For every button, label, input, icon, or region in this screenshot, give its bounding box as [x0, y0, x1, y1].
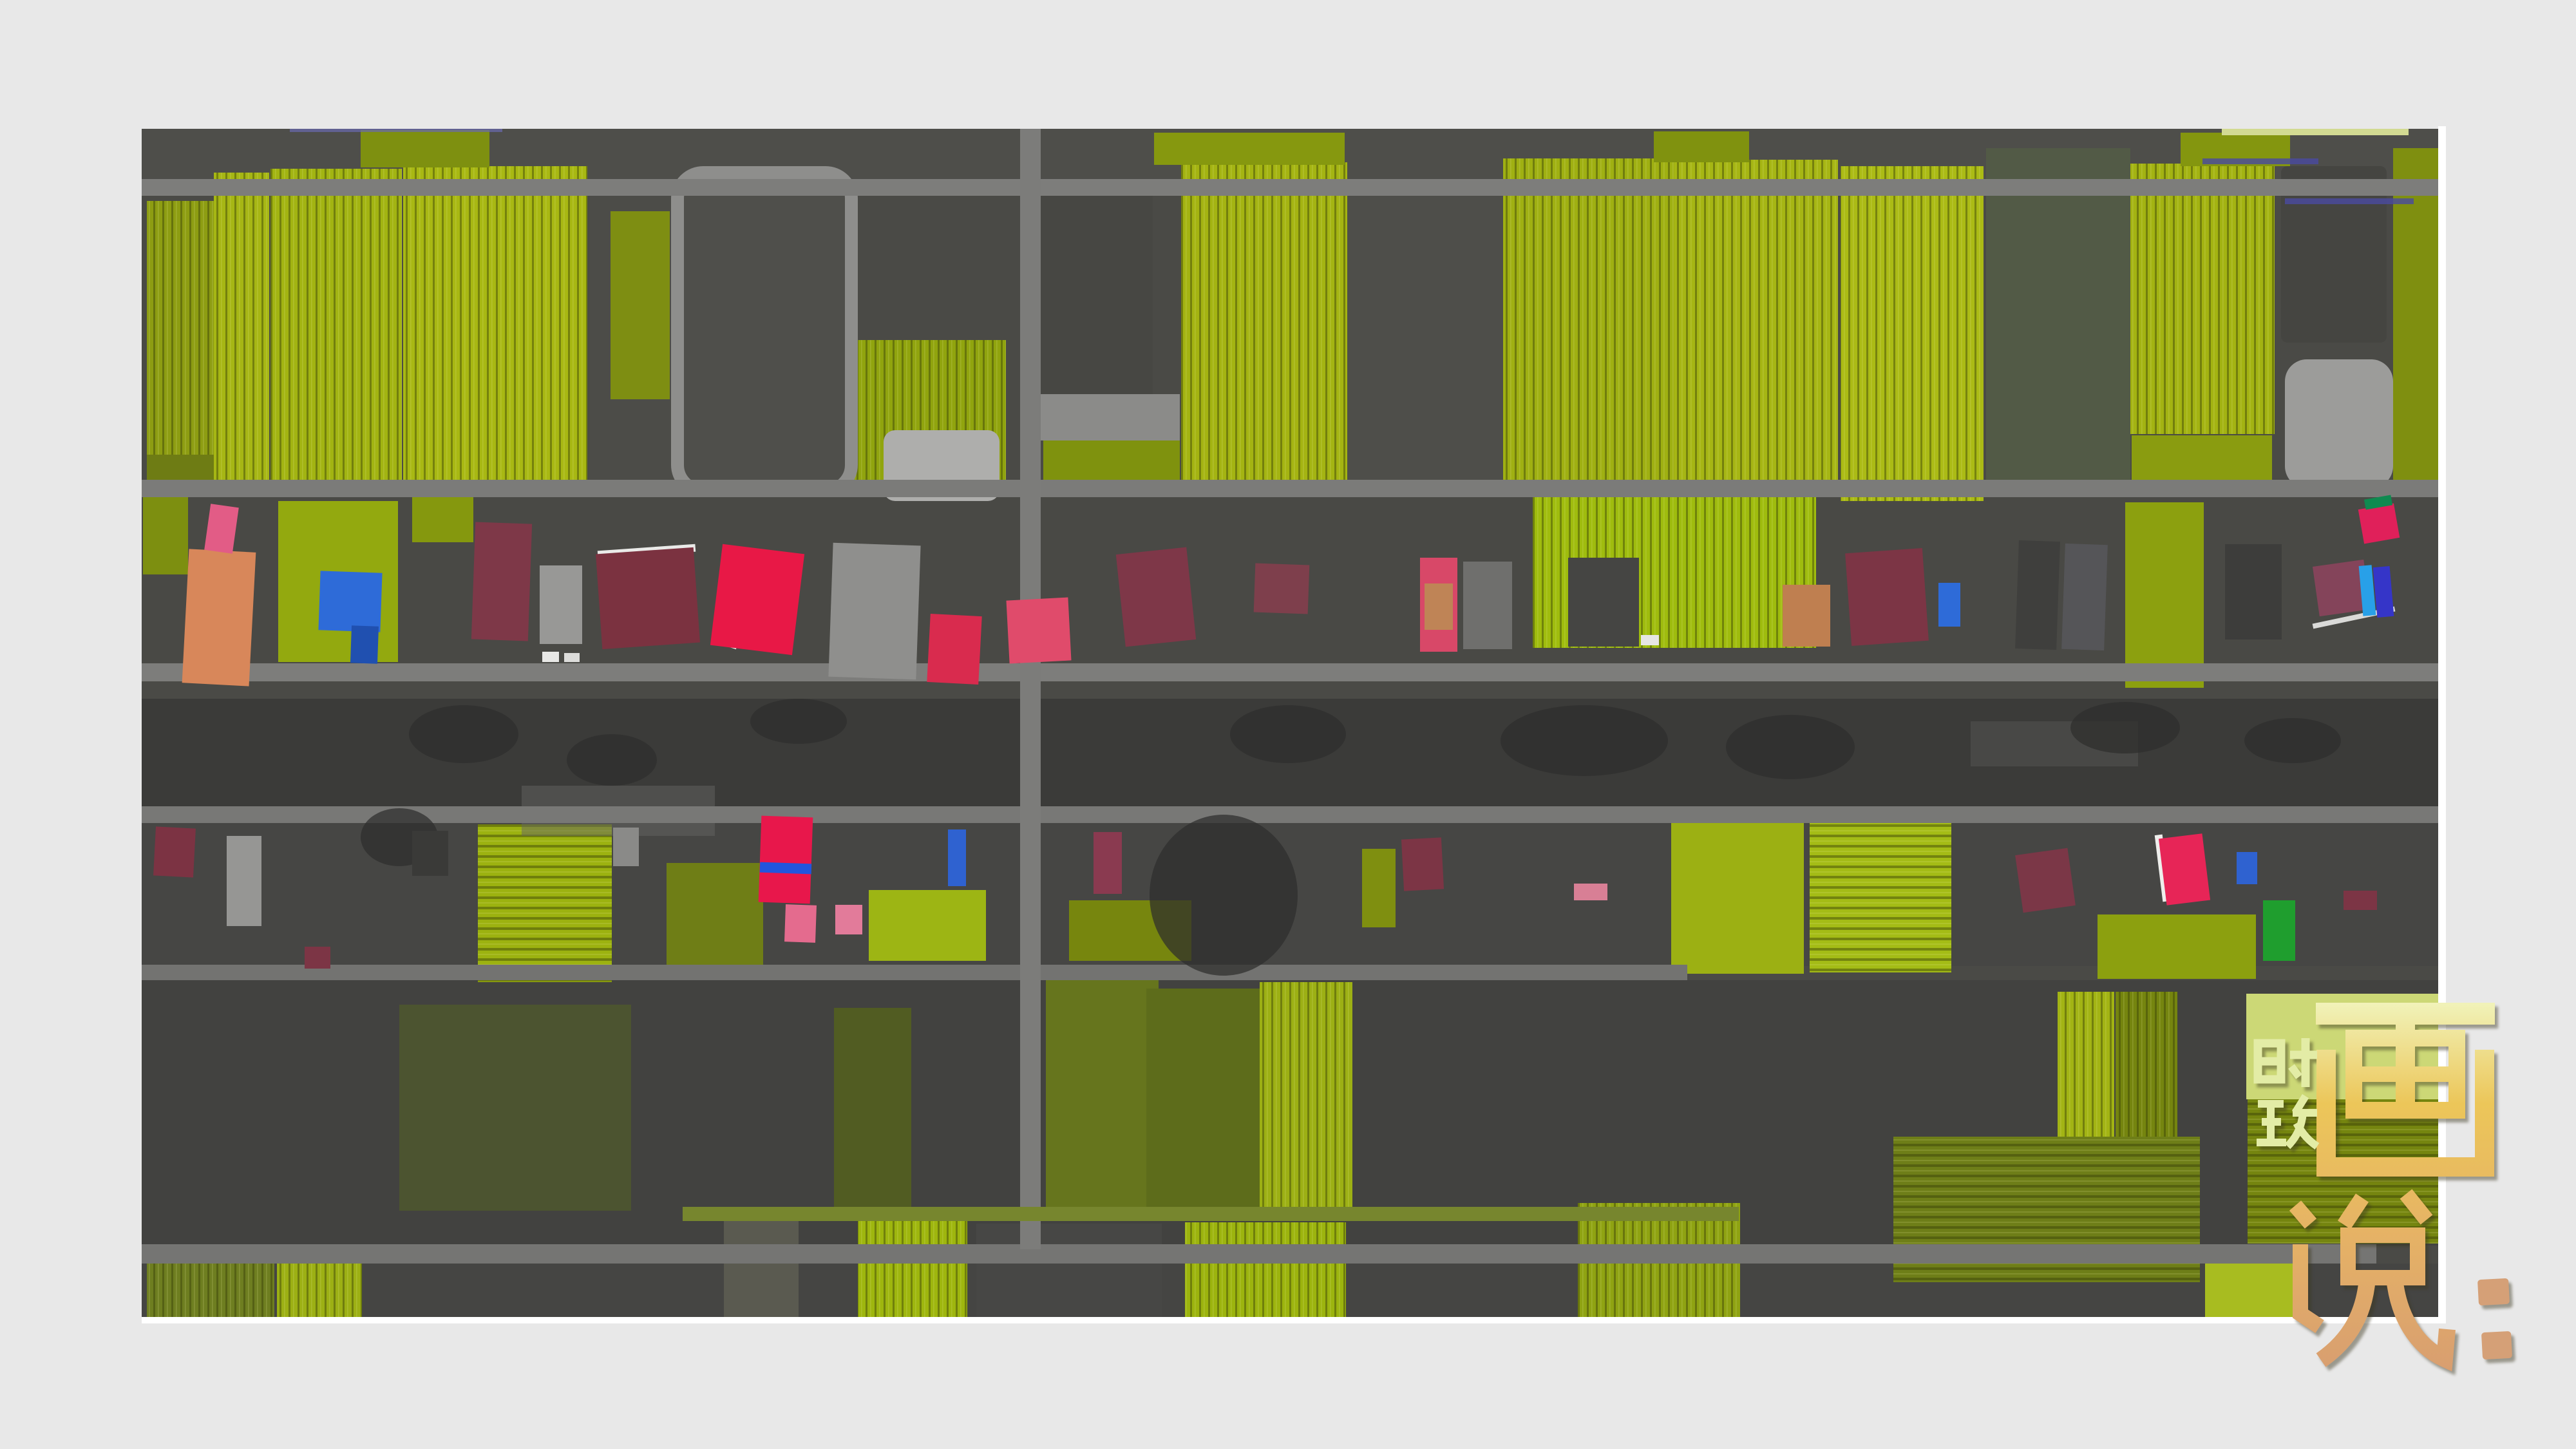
tree-blob	[2070, 702, 2180, 753]
house-roof	[1007, 598, 1072, 664]
detail	[564, 653, 580, 662]
glyph-colon	[2477, 1278, 2512, 1359]
crop-field-texture	[1181, 162, 1347, 497]
crop-field-texture	[1503, 158, 1674, 496]
detail	[1641, 635, 1659, 645]
detail	[227, 836, 261, 926]
road	[142, 480, 2441, 497]
crop-field-texture	[2116, 992, 2177, 1139]
road	[1020, 129, 1041, 1249]
house-roof	[1254, 563, 1310, 614]
crop-field-texture	[147, 201, 214, 456]
crop-field	[1154, 133, 1345, 165]
crop-field-texture	[478, 824, 612, 982]
house-roof	[784, 904, 817, 943]
house-roof	[412, 831, 448, 876]
photo-edge-line	[142, 1317, 2446, 1323]
tree-blob	[567, 734, 657, 786]
house-roof	[305, 947, 330, 969]
house-roof	[2225, 544, 2282, 639]
tree-blob	[750, 699, 847, 744]
crop-field	[834, 1008, 911, 1207]
house-roof	[1094, 832, 1122, 894]
house-roof	[540, 565, 582, 644]
detail	[1030, 394, 1180, 440]
crop-field-texture	[2058, 992, 2114, 1139]
house-roof	[760, 862, 812, 875]
road	[142, 179, 2441, 196]
crop-field-texture	[1260, 982, 1352, 1207]
crop-field	[361, 130, 489, 167]
house-roof	[2344, 891, 2377, 910]
crop-field	[2098, 914, 2256, 979]
detail	[2285, 198, 2414, 204]
ground-zone	[1986, 148, 2130, 496]
house-roof	[835, 905, 862, 934]
crop-field-texture	[214, 173, 269, 491]
photo-edge-line	[2438, 126, 2446, 1322]
house-roof	[2015, 540, 2060, 650]
road	[142, 663, 2441, 681]
house-roof	[1783, 585, 1830, 647]
house-roof	[1845, 548, 1929, 646]
tree-blob	[409, 705, 518, 763]
house-roof	[1401, 837, 1444, 891]
crop-field-texture	[1674, 160, 1838, 496]
crop-field-texture	[858, 1221, 967, 1317]
crop-field-texture	[147, 1257, 274, 1317]
house-roof	[710, 544, 804, 655]
crop-field	[869, 890, 986, 961]
crop-field	[611, 211, 670, 399]
house-roof	[1574, 884, 1607, 900]
crop-field	[1654, 131, 1749, 162]
tree-blob	[1150, 815, 1298, 976]
crop-field-texture	[403, 166, 587, 492]
detail	[1568, 558, 1639, 647]
house-roof	[2015, 848, 2076, 913]
house-roof	[2237, 852, 2257, 884]
pond	[2285, 359, 2393, 488]
crop-field	[399, 1005, 631, 1211]
house-roof	[1463, 562, 1512, 649]
house-roof	[350, 625, 379, 663]
detail	[2202, 158, 2318, 164]
house-roof	[1116, 547, 1196, 647]
house-roof	[948, 829, 966, 886]
crop-field	[667, 863, 763, 966]
crop-field	[1046, 979, 1159, 1209]
house-roof	[828, 543, 920, 680]
ground-zone	[1347, 161, 1503, 497]
crop-field-texture	[270, 169, 402, 491]
house-roof	[182, 549, 256, 686]
house-roof	[471, 522, 532, 641]
crop-field-texture	[1185, 1222, 1346, 1317]
house-roof	[1425, 583, 1453, 630]
house-roof	[613, 828, 639, 866]
house-roof	[2263, 900, 2295, 961]
crop-field-texture	[277, 1256, 362, 1317]
crop-field-texture	[2130, 164, 2275, 434]
crop-field	[724, 1221, 799, 1317]
house-roof	[318, 571, 382, 632]
crop-field	[412, 497, 473, 542]
crop-field	[1146, 989, 1261, 1209]
house-roof	[153, 826, 196, 877]
page-background: 时政 画说：	[0, 0, 2576, 1449]
house-roof	[927, 614, 981, 685]
photo-content	[142, 127, 2441, 1317]
road	[142, 965, 1687, 980]
crop-field	[2205, 1264, 2307, 1317]
crop-field	[1671, 819, 1804, 974]
house-roof	[2358, 504, 2400, 544]
house-roof	[596, 547, 700, 649]
aerial-photo	[0, 0, 2576, 1449]
house-roof	[1938, 583, 1960, 627]
road	[683, 1207, 1739, 1221]
pond	[677, 173, 851, 491]
detail	[290, 127, 502, 132]
tree-blob	[1726, 715, 1855, 779]
house-roof	[2159, 833, 2210, 905]
tree-blob	[1501, 705, 1668, 776]
crop-field-texture	[1810, 821, 1951, 972]
crop-field	[976, 1224, 1162, 1317]
crop-field	[1362, 849, 1396, 927]
house-roof	[759, 816, 813, 904]
detail	[542, 652, 559, 662]
detail	[2222, 128, 2409, 135]
road	[142, 806, 2441, 823]
ground-zone	[1030, 193, 1153, 396]
crop-field	[143, 497, 188, 574]
house-roof	[2061, 544, 2108, 650]
tree-blob	[2244, 718, 2341, 763]
road	[142, 1244, 2376, 1264]
crop-field-texture	[1841, 166, 1984, 501]
crop-field	[2125, 502, 2204, 688]
tree-blob	[1230, 705, 1346, 763]
